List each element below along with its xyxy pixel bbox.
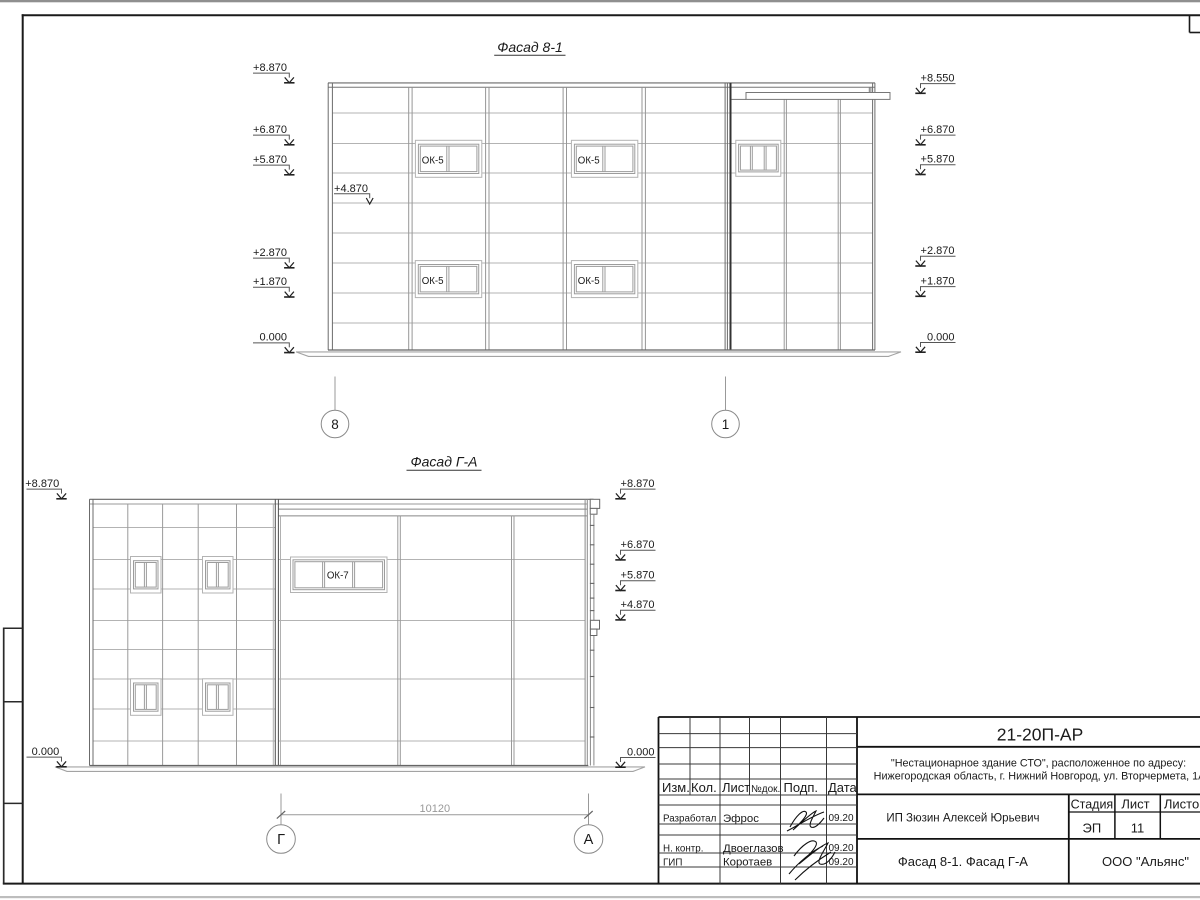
svg-text:Двоеглазов: Двоеглазов (723, 843, 784, 855)
svg-text:№док.: №док. (751, 784, 780, 795)
svg-text:+6.870: +6.870 (621, 539, 655, 551)
svg-text:ГИП: ГИП (663, 857, 682, 868)
svg-text:1: 1 (722, 417, 730, 432)
svg-text:+8.870: +8.870 (25, 478, 59, 490)
svg-text:+2.870: +2.870 (921, 245, 955, 257)
svg-text:"Нестационарное здание СТО", р: "Нестационарное здание СТО", расположенн… (891, 757, 1186, 769)
svg-text:+2.870: +2.870 (253, 247, 287, 259)
svg-text:+8.870: +8.870 (621, 478, 655, 490)
svg-text:ООО "Альянс": ООО "Альянс" (1102, 854, 1189, 869)
svg-text:Фасад Г-А: Фасад Г-А (411, 454, 478, 470)
svg-text:0.000: 0.000 (627, 746, 655, 758)
svg-text:А: А (584, 832, 594, 848)
svg-text:ОК-7: ОК-7 (327, 571, 349, 582)
svg-text:21-20П-АР: 21-20П-АР (997, 725, 1084, 745)
svg-text:+1.870: +1.870 (253, 276, 287, 288)
svg-text:8: 8 (331, 417, 339, 432)
svg-text:0.000: 0.000 (32, 746, 60, 758)
svg-text:Изм.: Изм. (662, 780, 690, 795)
svg-text:Разработал: Разработал (663, 814, 717, 825)
svg-text:Дата: Дата (828, 780, 858, 795)
svg-text:0.000: 0.000 (259, 332, 287, 344)
svg-text:+4.870: +4.870 (621, 599, 655, 611)
svg-text:Фасад 8-1. Фасад Г-А: Фасад 8-1. Фасад Г-А (898, 854, 1028, 869)
svg-text:11: 11 (1131, 821, 1145, 836)
svg-text:10120: 10120 (420, 803, 451, 815)
svg-text:ОК-5: ОК-5 (422, 276, 444, 287)
svg-text:Лист: Лист (722, 780, 750, 795)
svg-text:+5.870: +5.870 (621, 570, 655, 582)
svg-text:ИП Зюзин Алексей Юрьевич: ИП Зюзин Алексей Юрьевич (886, 813, 1039, 825)
svg-text:ОК-5: ОК-5 (422, 156, 444, 167)
svg-text:ОК-5: ОК-5 (578, 156, 600, 167)
svg-text:+4.870: +4.870 (334, 183, 368, 195)
svg-text:Нижегородская область, г. Нижн: Нижегородская область, г. Нижний Новгоро… (874, 770, 1200, 782)
svg-text:Коротаев: Коротаев (723, 857, 772, 869)
svg-text:Фасад 8-1: Фасад 8-1 (497, 39, 563, 55)
svg-text:Н. контр.: Н. контр. (663, 844, 703, 855)
svg-text:ЭП: ЭП (1083, 821, 1102, 836)
svg-text:Кол.: Кол. (691, 780, 717, 795)
svg-text:+8.550: +8.550 (921, 72, 955, 84)
svg-text:ОК-5: ОК-5 (578, 276, 600, 287)
svg-text:+5.870: +5.870 (921, 154, 955, 166)
svg-text:+6.870: +6.870 (921, 124, 955, 136)
svg-text:Стадия: Стадия (1071, 798, 1114, 812)
svg-text:09.20: 09.20 (828, 843, 853, 854)
svg-text:+6.870: +6.870 (253, 124, 287, 136)
svg-text:Лист: Лист (1121, 797, 1149, 812)
svg-text:Листов: Листов (1164, 797, 1200, 812)
svg-text:+1.870: +1.870 (921, 275, 955, 287)
svg-text:09.20: 09.20 (828, 857, 853, 868)
svg-text:Подп.: Подп. (784, 780, 819, 795)
svg-text:+5.870: +5.870 (253, 154, 287, 166)
svg-text:0.000: 0.000 (927, 331, 955, 343)
svg-text:09.20: 09.20 (828, 813, 853, 824)
svg-text:Г: Г (277, 832, 285, 848)
svg-text:+8.870: +8.870 (253, 62, 287, 74)
svg-text:Эфрос: Эфрос (723, 813, 759, 825)
